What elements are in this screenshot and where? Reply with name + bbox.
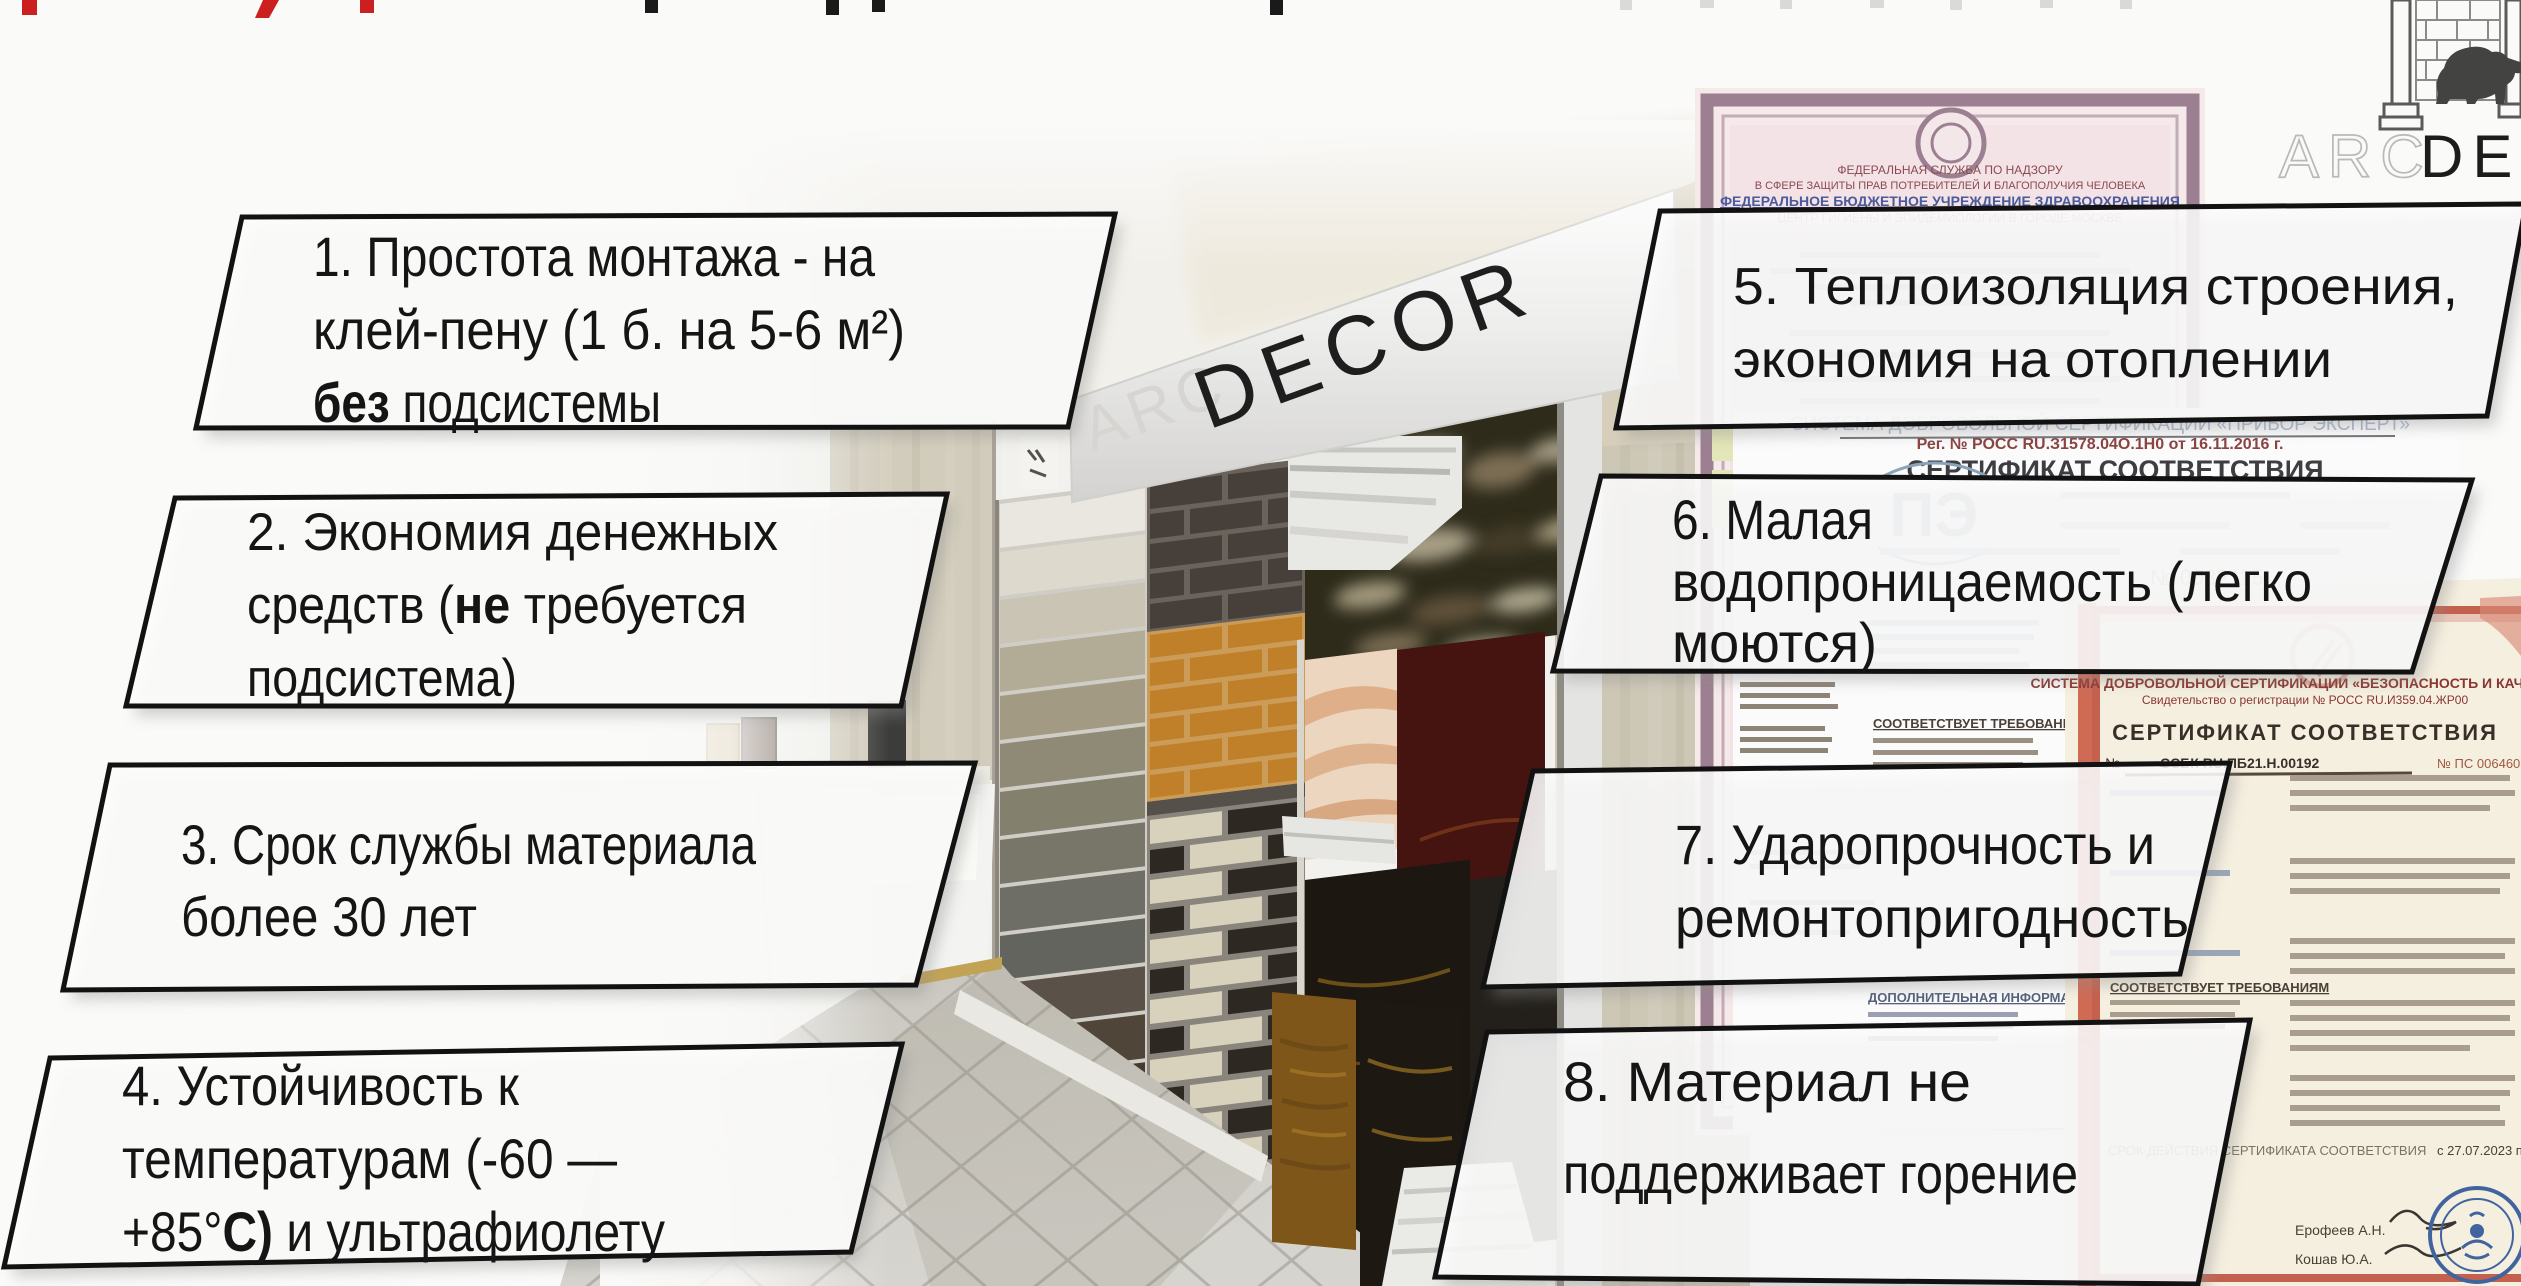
svg-text:3. Срок службы материала: 3. Срок службы материала xyxy=(181,813,757,876)
svg-text:Свидетельство о регистрации №: Свидетельство о регистрации № РОСС RU.И3… xyxy=(2142,693,2469,707)
svg-text:Ерофеев А.Н.: Ерофеев А.Н. xyxy=(2295,1222,2386,1238)
svg-text:моются): моются) xyxy=(1672,611,1877,674)
svg-text:СЕРТИФИКАТ СООТВЕТСТВИЯ: СЕРТИФИКАТ СООТВЕТСТВИЯ xyxy=(2112,720,2498,745)
svg-text:с 27.07.2023 по 26.07.2028: с 27.07.2023 по 26.07.2028 xyxy=(2437,1143,2521,1158)
svg-text:Рег. № РОСС RU.З1578.04О.1Н0 о: Рег. № РОСС RU.З1578.04О.1Н0 от 16.11.20… xyxy=(1917,436,2284,453)
svg-text:водопроницаемость (легко: водопроницаемость (легко xyxy=(1672,550,2312,613)
svg-text:5. Теплоизоляция строения,: 5. Теплоизоляция строения, xyxy=(1733,258,2458,316)
svg-text:СООТВЕТСТВУЕТ ТРЕБОВАНИЯ: СООТВЕТСТВУЕТ ТРЕБОВАНИЯ xyxy=(1873,716,2081,731)
svg-text:клей-пену (1 б. на 5-6 м²): клей-пену (1 б. на 5-6 м²) xyxy=(313,298,905,361)
svg-text:DEC: DEC xyxy=(2420,123,2521,190)
svg-text:№ ПС 006460: № ПС 006460 xyxy=(2437,756,2520,771)
svg-text:ARC: ARC xyxy=(2279,123,2433,190)
svg-text:ФЕДЕРАЛЬНАЯ СЛУЖБА ПО НАДЗОРУ: ФЕДЕРАЛЬНАЯ СЛУЖБА ПО НАДЗОРУ xyxy=(1837,163,2063,177)
svg-text:4. Устойчивость к: 4. Устойчивость к xyxy=(122,1054,519,1117)
svg-text:В СФЕРЕ ЗАЩИТЫ ПРАВ ПОТРЕБИТЕЛ: В СФЕРЕ ЗАЩИТЫ ПРАВ ПОТРЕБИТЕЛЕЙ И БЛАГО… xyxy=(1755,179,2146,192)
svg-text:7. Ударопрочность и: 7. Ударопрочность и xyxy=(1675,813,2155,876)
svg-text:более 30 лет: более 30 лет xyxy=(181,885,477,948)
svg-text:6. Малая: 6. Малая xyxy=(1672,488,1873,551)
svg-text:ремонтопригодность: ремонтопригодность xyxy=(1675,886,2189,949)
svg-text:2. Экономия денежных: 2. Экономия денежных xyxy=(247,503,778,562)
svg-text:8. Материал не: 8. Материал не xyxy=(1563,1050,1971,1113)
svg-text:поддерживает горение: поддерживает горение xyxy=(1563,1142,2078,1205)
svg-text:подсистема): подсистема) xyxy=(247,649,517,708)
svg-text:1. Простота монтажа - на: 1. Простота монтажа - на xyxy=(313,225,876,288)
svg-text:средств (не требуется: средств (не требуется xyxy=(247,576,747,635)
svg-text:экономия на отоплении: экономия на отоплении xyxy=(1733,331,2332,389)
svg-text:температурам (-60 —: температурам (-60 — xyxy=(122,1127,617,1190)
svg-text:+85°С) и ультрафиолету: +85°С) и ультрафиолету xyxy=(122,1200,665,1263)
svg-text:без подсистемы: без подсистемы xyxy=(313,371,661,434)
svg-text:ДОПОЛНИТЕЛЬНАЯ ИНФОРМА: ДОПОЛНИТЕЛЬНАЯ ИНФОРМА xyxy=(1868,990,2070,1005)
svg-text:Кошав Ю.А.: Кошав Ю.А. xyxy=(2295,1251,2373,1267)
